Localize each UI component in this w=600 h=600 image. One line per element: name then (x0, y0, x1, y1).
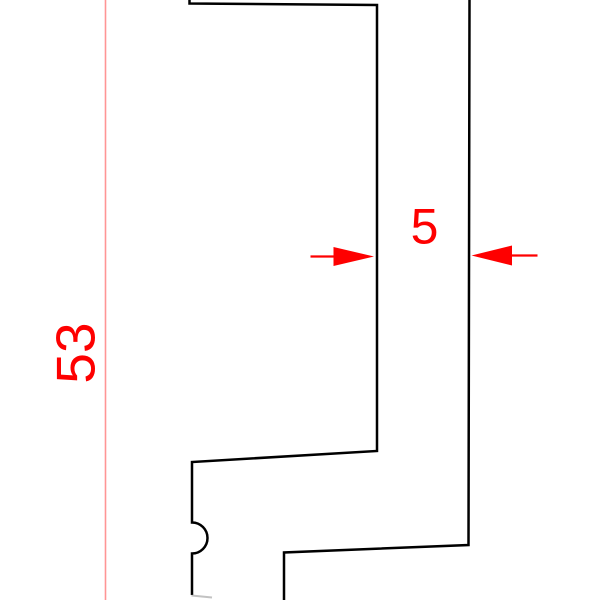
width-dimension-label: 5 (411, 199, 439, 255)
height-dimension-label: 53 (45, 322, 107, 383)
profile-foot-edge (192, 596, 213, 598)
width-dimension-left-arrow-head (334, 247, 375, 266)
width-dimension-right-arrow-head (472, 246, 513, 266)
profile-body-outline (190, 0, 378, 595)
profile-technical-drawing: 53 5 (0, 0, 600, 600)
drawing-canvas: 53 5 (0, 0, 600, 600)
